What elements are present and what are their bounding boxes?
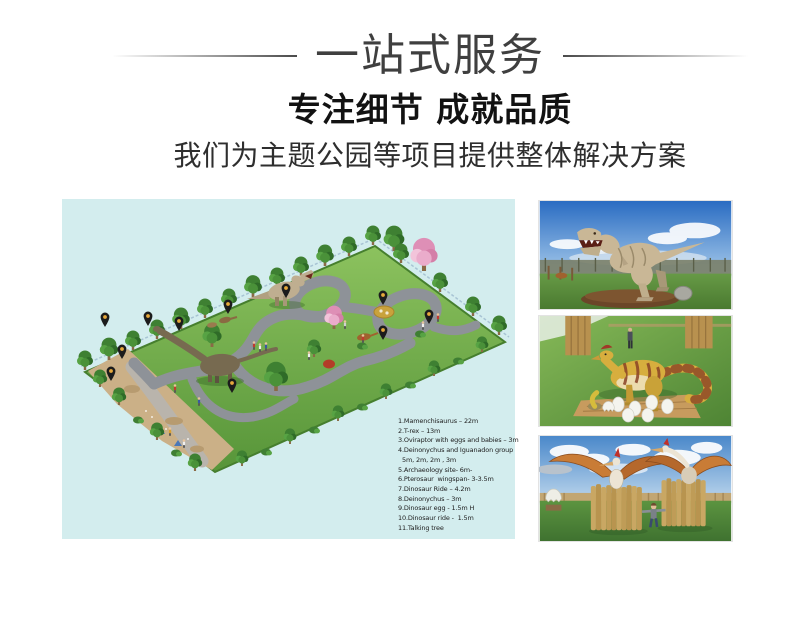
park-plan-image: 1.Mamenchisaurus – 22m 2.T-rex – 13m 3.O… <box>62 199 515 539</box>
legend-line: 7.Dinosaur Ride – 4.2m <box>398 485 516 495</box>
trex-photo-illustration <box>539 201 732 309</box>
pterosaur-photo-illustration <box>539 436 732 541</box>
left-palisade-tower <box>589 484 648 535</box>
page-heading: 专注细节 成就品质 <box>30 90 800 130</box>
page-subheading: 我们为主题公园等项目提供整体解决方案 <box>30 138 800 174</box>
egg-decoration <box>546 489 562 511</box>
legend-line: 2.T-rex – 13m <box>398 427 516 437</box>
legend-line: 9.Dinosaur egg - 1.5m H <box>398 504 516 514</box>
legend-line: 5.Archaeology site- 6m- <box>398 466 516 476</box>
decorative-line-left <box>112 55 297 57</box>
photo-trex <box>538 200 733 310</box>
legend-line: 11.Talking tree <box>398 524 516 534</box>
photo-oviraptor-nest <box>538 315 733 427</box>
legend-line: 3.Oviraptor with eggs and babies – 3m <box>398 436 516 446</box>
legend-line: 5m, 2m, 2m , 3m <box>398 456 516 466</box>
red-bush <box>323 360 335 369</box>
oviraptor-photo-illustration <box>539 316 732 426</box>
legend-line: 4.Deinonychus and Iguanadon group <box>398 446 516 456</box>
banner-title: 一站式服务 <box>315 33 545 79</box>
banner-title-row: 一站式服务 <box>30 33 800 79</box>
legend-line: 8.Deinonychus – 3m <box>398 495 516 505</box>
photo-pterosaurs <box>538 435 733 542</box>
photo-column <box>538 200 733 542</box>
legend-line: 6.Pterosaur wingspan- 3-3.5m <box>398 475 516 485</box>
right-palisade-tower <box>658 478 713 532</box>
decorative-line-right <box>563 55 748 57</box>
promo-page: 一站式服务 专注细节 成就品质 我们为主题公园等项目提供整体解决方案 <box>0 0 800 626</box>
legend-line: 10.Dinosaur ride - 1.5m <box>398 514 516 524</box>
plan-legend-list: 1.Mamenchisaurus – 22m 2.T-rex – 13m 3.O… <box>398 417 516 533</box>
legend-line: 1.Mamenchisaurus – 22m <box>398 417 516 427</box>
